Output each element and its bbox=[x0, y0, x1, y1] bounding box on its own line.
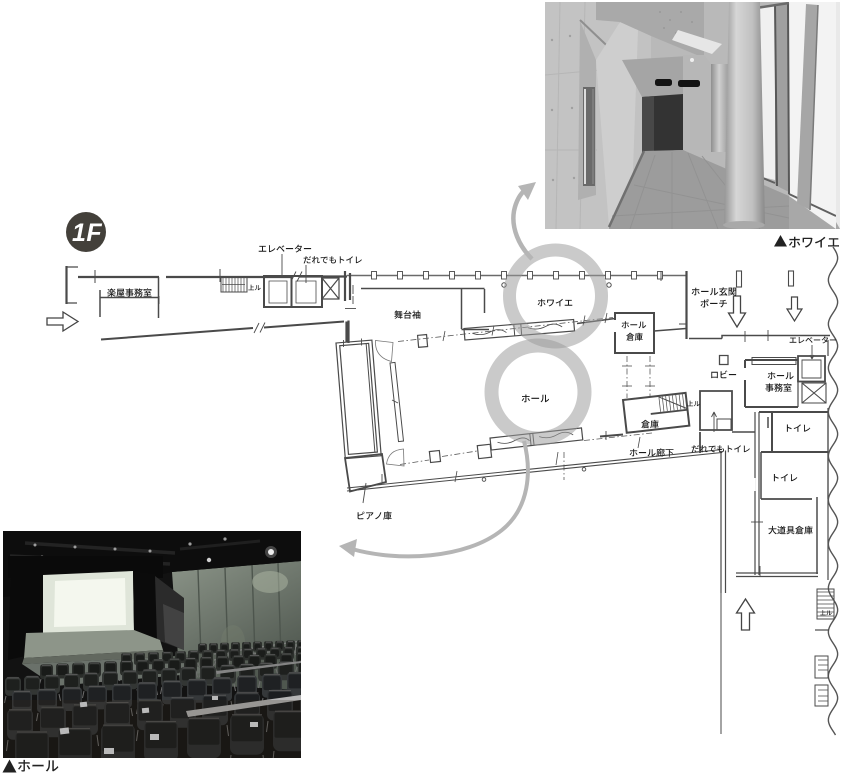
svg-text:1: 1 bbox=[72, 219, 86, 247]
svg-text:F: F bbox=[86, 219, 102, 247]
